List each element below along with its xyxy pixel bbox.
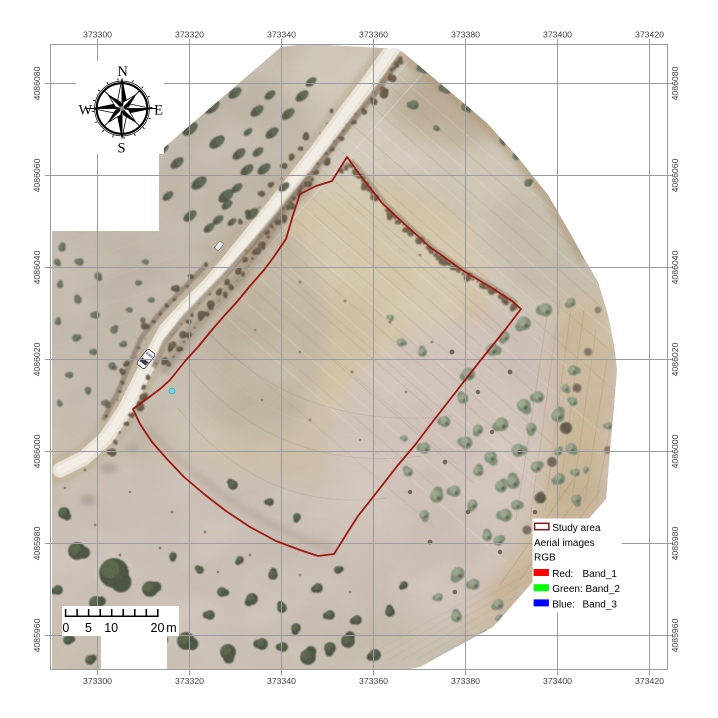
svg-text:4085980: 4085980 — [670, 526, 680, 560]
svg-text:m: m — [166, 621, 176, 635]
svg-text:Red:: Red: — [552, 569, 573, 580]
svg-text:10: 10 — [104, 621, 118, 635]
svg-text:4086060: 4086060 — [32, 158, 42, 192]
svg-text:373300: 373300 — [83, 30, 112, 40]
svg-text:Blue:: Blue: — [552, 599, 575, 610]
svg-text:373320: 373320 — [175, 30, 204, 40]
svg-text:Green:: Green: — [552, 584, 583, 595]
svg-text:Band_2: Band_2 — [586, 584, 621, 595]
svg-text:4086080: 4086080 — [32, 66, 42, 100]
svg-text:Band_3: Band_3 — [583, 599, 618, 610]
svg-text:4086060: 4086060 — [670, 158, 680, 192]
svg-text:373420: 373420 — [635, 30, 664, 40]
svg-text:N: N — [117, 64, 128, 80]
svg-text:0: 0 — [62, 621, 69, 635]
svg-text:373360: 373360 — [359, 676, 388, 686]
svg-text:Band_1: Band_1 — [583, 569, 618, 580]
svg-text:373320: 373320 — [175, 676, 204, 686]
svg-text:4086000: 4086000 — [670, 434, 680, 468]
svg-text:373300: 373300 — [83, 676, 112, 686]
svg-text:4086040: 4086040 — [670, 250, 680, 284]
svg-text:4085980: 4085980 — [32, 526, 42, 560]
svg-text:Study area: Study area — [552, 523, 601, 534]
svg-text:RGB: RGB — [534, 553, 556, 564]
svg-text:373340: 373340 — [267, 30, 296, 40]
svg-text:373380: 373380 — [451, 676, 480, 686]
svg-text:373340: 373340 — [267, 676, 296, 686]
svg-text:4085960: 4085960 — [670, 618, 680, 652]
svg-text:4086040: 4086040 — [32, 250, 42, 284]
svg-text:E: E — [154, 103, 163, 119]
svg-text:4086020: 4086020 — [32, 342, 42, 376]
svg-text:4086000: 4086000 — [32, 434, 42, 468]
svg-text:373360: 373360 — [359, 30, 388, 40]
svg-text:4085960: 4085960 — [32, 618, 42, 652]
svg-text:4086080: 4086080 — [670, 66, 680, 100]
svg-text:373400: 373400 — [543, 30, 572, 40]
svg-text:373400: 373400 — [543, 676, 572, 686]
svg-text:W: W — [78, 102, 92, 118]
svg-text:Aerial images: Aerial images — [534, 538, 595, 549]
svg-text:373380: 373380 — [451, 30, 480, 40]
svg-text:20: 20 — [151, 621, 165, 635]
svg-text:5: 5 — [85, 621, 92, 635]
svg-text:S: S — [118, 141, 126, 157]
svg-text:4086020: 4086020 — [670, 342, 680, 376]
svg-text:373420: 373420 — [635, 676, 664, 686]
